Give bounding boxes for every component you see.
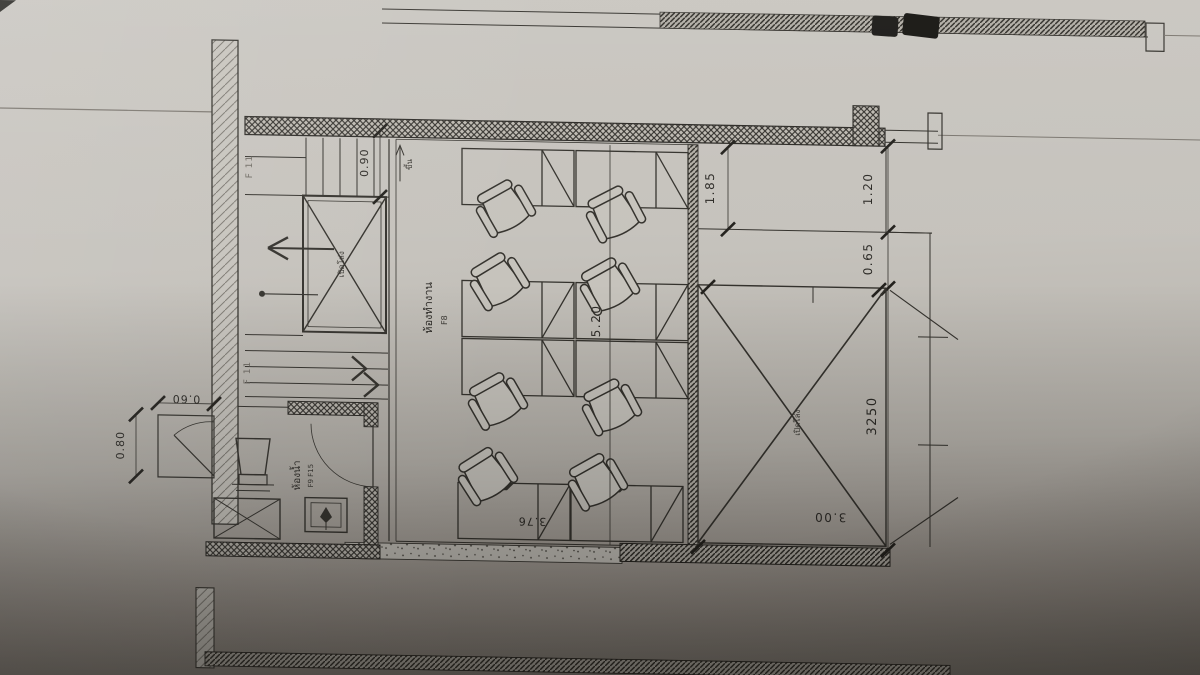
office-chair <box>451 442 519 507</box>
void-width-dim: 3.00 <box>814 510 847 525</box>
office-furniture <box>451 148 688 542</box>
strip-line <box>1164 35 1200 36</box>
office-length-dim: 5.20 <box>589 304 603 337</box>
right-zone: 1.85 1.20 0.65 เปิดโล่ง 3250 3.00 <box>691 136 958 559</box>
stair-tread-line <box>245 382 388 385</box>
store-depth-dim: 0.80 <box>114 431 127 460</box>
bathroom-code: F9 F15 <box>307 464 315 488</box>
stair-floor-code-lower: F 11 <box>243 361 253 385</box>
strip-end-box <box>1146 23 1164 51</box>
stair-arrow-head <box>268 248 288 259</box>
store-room <box>158 415 214 478</box>
toilet-tank <box>236 438 270 475</box>
corner-mark <box>0 0 16 12</box>
dark-print-blob <box>871 15 898 37</box>
dim-tick <box>701 280 715 294</box>
store-door-arc <box>174 421 214 436</box>
dark-print-blob <box>902 13 940 39</box>
void-opening-dim: 3250 <box>865 396 880 435</box>
wall-strip <box>364 403 378 427</box>
hatched-wall-band <box>660 12 1145 37</box>
office-chair <box>464 248 532 313</box>
bathroom-zone: ห้องน้ำ F9 F15 0.60 0.80 <box>114 391 380 559</box>
wall-line <box>238 406 288 407</box>
wall-line <box>886 232 932 233</box>
grid-tick <box>918 337 948 338</box>
stair-arrow-tail <box>270 248 334 249</box>
office-width-dim: 3.76 <box>518 514 546 528</box>
bathroom-name: ห้องน้ำ <box>289 460 303 490</box>
floor-plan-drawing: เปิดโล่ง F 11 F 11 0.90 ขึ้น <box>0 0 1200 675</box>
office-chair <box>574 253 641 317</box>
office-room-name: ห้องทำงาน <box>422 281 435 333</box>
door-swing-arc <box>311 424 373 487</box>
office-chair <box>470 175 537 239</box>
store-door-leaf <box>174 435 214 476</box>
top-sheet-strip <box>382 3 1200 52</box>
void-room-label: เปิดโล่ง <box>792 409 802 435</box>
office-chair <box>580 181 647 244</box>
toilet-seat <box>239 474 267 485</box>
wall-line <box>885 130 938 131</box>
upper-right-depth-dim: 1.85 <box>703 172 717 205</box>
left-wall <box>212 40 238 524</box>
stair-arrow-head <box>268 237 288 248</box>
bottom-wall-hatch <box>620 543 890 566</box>
stair-void-label: เปิดโล่ง <box>336 251 346 277</box>
grid-tick <box>918 445 948 446</box>
office-chair <box>562 449 629 513</box>
staircase: เปิดโล่ง F 11 F 11 0.90 ขึ้น <box>243 121 414 399</box>
stair-landing-line <box>245 334 303 335</box>
floor-plan-photo: เปิดโล่ง F 11 F 11 0.90 ขึ้น <box>0 0 1200 675</box>
right-gap-dim: 0.65 <box>861 242 875 275</box>
wall-band <box>206 542 380 559</box>
bottom-wall-stipple <box>345 542 622 563</box>
plan-skew-group: เปิดโล่ง F 11 F 11 0.90 ขึ้น <box>0 0 1200 675</box>
partial-diagonal <box>890 496 958 545</box>
partial-diagonal <box>890 290 958 339</box>
wall-strip <box>364 487 378 545</box>
top-wall <box>245 94 942 149</box>
wall-strip <box>688 145 698 547</box>
toilet-base <box>236 490 270 491</box>
office-room-code: F8 <box>440 315 449 325</box>
hatched-wall-band <box>205 652 950 675</box>
right-bay-width-dim: 1.20 <box>861 172 875 205</box>
stair-width-dim: 0.90 <box>358 148 371 177</box>
faint-grid-line <box>0 108 212 112</box>
store-width-dim: 0.60 <box>172 392 200 406</box>
stair-tread-line <box>245 350 388 353</box>
faint-grid-line <box>938 135 1200 140</box>
bottom-sheet-strip <box>196 588 950 675</box>
wall-band <box>245 116 885 146</box>
stair-path-line <box>262 294 318 295</box>
stair-floor-code-upper: F 11 <box>245 155 255 179</box>
wall-strip <box>212 40 238 524</box>
stair-tread-line <box>245 396 388 399</box>
wall-column <box>853 106 879 146</box>
stair-up-label: ขึ้น <box>403 158 414 170</box>
office-chair <box>462 368 529 432</box>
